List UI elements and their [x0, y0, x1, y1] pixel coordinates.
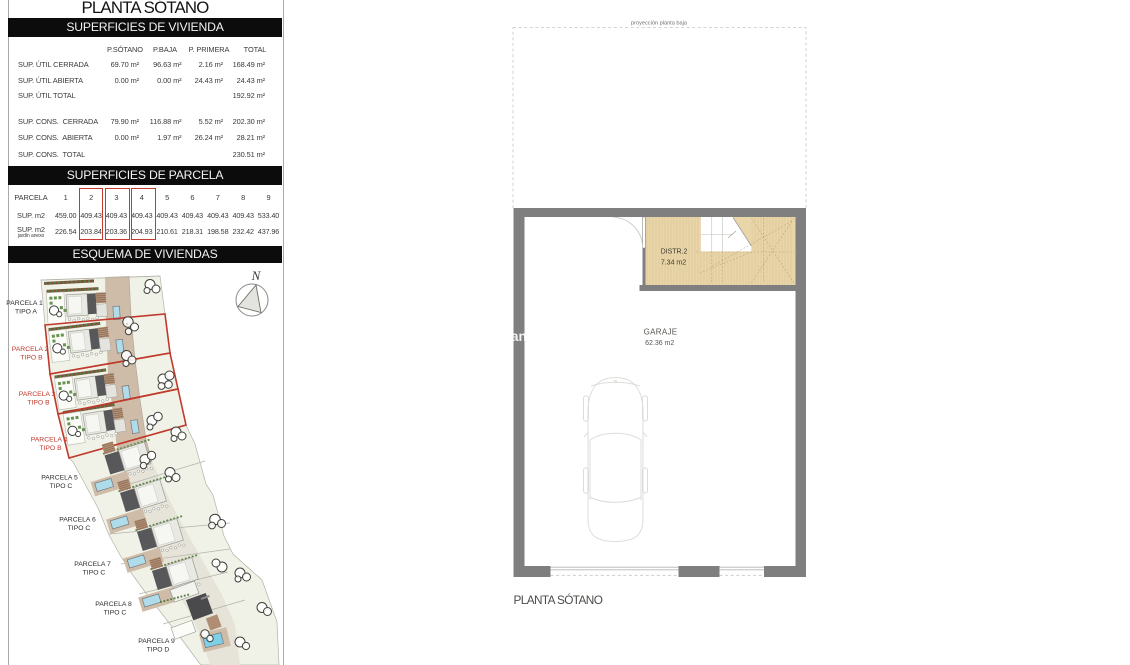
svg-text:PARCELA 7: PARCELA 7 — [74, 561, 111, 568]
svg-text:N: N — [251, 268, 262, 283]
svg-text:PLANTA SÓTANO: PLANTA SÓTANO — [514, 593, 603, 607]
svg-text:7.34 m2: 7.34 m2 — [661, 259, 686, 266]
svg-text:TIPO B: TIPO B — [39, 445, 62, 452]
svg-text:PARCELA 5: PARCELA 5 — [41, 475, 78, 482]
svg-text:an: an — [511, 329, 527, 344]
svg-text:PARCELA 1: PARCELA 1 — [6, 300, 43, 307]
svg-text:TIPO C: TIPO C — [83, 570, 106, 577]
svg-text:TIPO B: TIPO B — [27, 400, 50, 407]
svg-text:GARAJE: GARAJE — [644, 328, 678, 337]
svg-text:TIPO A: TIPO A — [15, 309, 37, 316]
svg-text:PARCELA 2: PARCELA 2 — [12, 346, 49, 353]
svg-text:62.36 m2: 62.36 m2 — [645, 340, 674, 347]
svg-text:PARCELA 4: PARCELA 4 — [31, 437, 68, 444]
svg-text:proyección planta baja: proyección planta baja — [631, 21, 688, 27]
svg-text:TIPO B: TIPO B — [20, 355, 43, 362]
svg-text:PARCELA 9: PARCELA 9 — [138, 638, 175, 645]
svg-text:TIPO C: TIPO C — [68, 525, 91, 532]
svg-text:PARCELA 6: PARCELA 6 — [59, 517, 96, 524]
svg-text:DISTR.2: DISTR.2 — [661, 248, 688, 255]
svg-text:PARCELA 8: PARCELA 8 — [95, 601, 132, 608]
svg-text:TIPO C: TIPO C — [50, 483, 73, 490]
svg-text:TIPO C: TIPO C — [104, 610, 127, 617]
svg-text:PARCELA 3: PARCELA 3 — [19, 391, 56, 398]
svg-text:TIPO D: TIPO D — [147, 647, 170, 654]
